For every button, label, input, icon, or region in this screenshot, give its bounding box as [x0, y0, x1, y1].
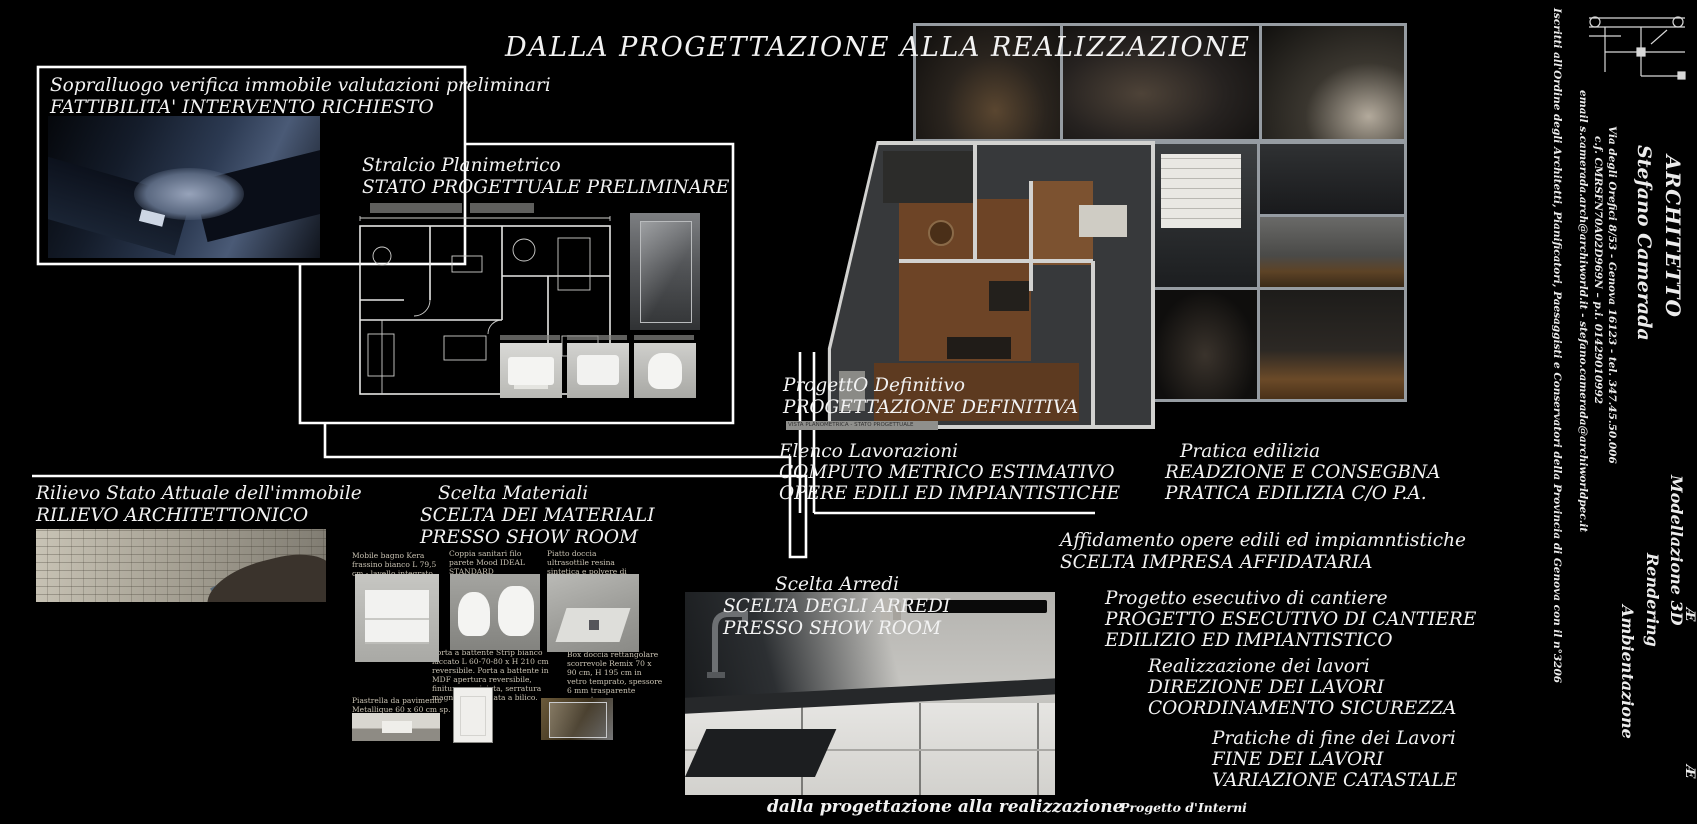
- materiali-title: Scelta Materiali: [438, 484, 588, 504]
- sidebar-service-3: Ambientazione: [1619, 605, 1635, 739]
- shower-cabin-photo: [630, 213, 700, 330]
- esecutivo-title: Progetto esecutivo di cantiere: [1105, 589, 1388, 609]
- sidebar-service-1: Modellazione 3D: [1668, 475, 1684, 626]
- hand-sketch-photo: [36, 529, 326, 602]
- shower-tray-photo: [547, 574, 639, 652]
- thumb-caption-bar: [500, 335, 560, 340]
- vanity-photo: [355, 574, 439, 662]
- shower-glass: [640, 221, 692, 323]
- render-photo: [1262, 26, 1404, 139]
- pratica-title: Pratica edilizia: [1180, 442, 1320, 462]
- thumb-caption-bar: [567, 335, 627, 340]
- sopralluogo-title: Sopralluogo verifica immobile valutazion…: [50, 76, 551, 96]
- sidebar-architect-name: Stefano Camerada: [1634, 145, 1653, 341]
- plan-note-bar: [470, 203, 534, 213]
- bidet-shape: [458, 592, 490, 636]
- arredi-title: Scelta Arredi: [775, 575, 899, 595]
- elenco-title: Elenco Lavorazioni: [779, 442, 958, 462]
- progetto-definitivo-subtitle: PROGETTAZIONE DEFINITIVA: [783, 398, 1078, 418]
- presentation-board: DALLA PROGETTAZIONE ALLA REALIZZAZIONE S…: [0, 0, 1697, 824]
- fine-lavori-line3: VARIAZIONE CATASTALE: [1212, 771, 1457, 791]
- footer-project-label: Progetto d'Interni: [1120, 801, 1247, 815]
- bidet-thumb: [634, 343, 696, 398]
- rilievo-title: Rilievo Stato Attuale dell'immobile: [36, 484, 362, 504]
- render-collage-right: [1150, 141, 1407, 402]
- stralcio-subtitle: STATO PROGETTUALE PRELIMINARE: [362, 178, 729, 198]
- fine-lavori-line2: FINE DEI LAVORI: [1212, 750, 1383, 770]
- washbasin-shape: [508, 357, 554, 385]
- kitchen-sink: [685, 729, 836, 777]
- island-shape: [382, 721, 412, 733]
- realizzazione-title: Realizzazione dei lavori: [1148, 657, 1370, 677]
- handshake-photo: [48, 116, 320, 258]
- edge-glyph: Æ: [1683, 608, 1696, 621]
- door-photo: [453, 687, 493, 743]
- pratica-line2: READZIONE E CONSEGBNA: [1165, 463, 1441, 483]
- shower-box-glass: [549, 702, 607, 738]
- door-panel-line: [460, 696, 486, 736]
- fine-lavori-title: Pratiche di fine dei Lavori: [1212, 729, 1456, 749]
- pratica-line3: PRATICA EDILIZIA C/O P.A.: [1165, 484, 1427, 504]
- materiali-line2: SCELTA DEI MATERIALI: [420, 506, 655, 526]
- rilievo-subtitle: RILIEVO ARCHITETTONICO: [36, 506, 308, 526]
- product-caption: Box doccia rettangolare scorrevole Remix…: [567, 650, 663, 704]
- render-photo: [1260, 144, 1404, 214]
- bidet-shape: [648, 353, 682, 389]
- product-caption: Coppia sanitari filo parete Mood IDEAL S…: [449, 549, 547, 576]
- product-caption: Porta a battente Strip bianco laccato L …: [432, 648, 560, 702]
- sidebar-profession: ARCHITETTO: [1663, 155, 1683, 318]
- esecutivo-line2: PROGETTO ESECUTIVO DI CANTIERE: [1105, 610, 1476, 630]
- arredi-line2: SCELTA DEGLI ARREDI: [723, 597, 950, 617]
- washbasin-thumb: [500, 343, 562, 398]
- plan-sheet-thumb: [1161, 154, 1241, 228]
- render-photo-bathroom: [1153, 144, 1257, 287]
- arredi-line3: PRESSO SHOW ROOM: [723, 619, 941, 639]
- edge-glyph: Æ: [1683, 765, 1696, 778]
- sidebar-email: email s.camerada.arch@archiworld.it - st…: [1578, 90, 1589, 532]
- elenco-line2: COMPUTO METRICO ESTIMATIVO: [779, 463, 1115, 483]
- vanity-drawer-line: [365, 618, 429, 620]
- washbasin-thumb: [567, 343, 629, 398]
- thumb-caption-bar: [634, 335, 694, 340]
- vanity-shape: [365, 590, 429, 644]
- toilet-shape: [498, 586, 534, 636]
- realizzazione-line3: COORDINAMENTO SICUREZZA: [1148, 699, 1456, 719]
- sidebar-fiscal-code: c.f. CMRSFN70A02D969N – p.i. 01429010992: [1593, 136, 1604, 404]
- plan-caption-bar: VISTA PLANOMETRICA - STATO PROGETTUALE: [786, 421, 938, 430]
- toilet-bidet-photo: [450, 574, 540, 650]
- render-photo: [1153, 290, 1257, 399]
- washbasin-shape: [577, 355, 619, 385]
- drafting-machine-logo-icon: [1585, 6, 1689, 84]
- render-photo-woodfloor: [1260, 290, 1404, 399]
- sopralluogo-subtitle: FATTIBILITA' INTERVENTO RICHIESTO: [50, 98, 434, 118]
- tile-floor-photo: [352, 713, 440, 741]
- materiali-line3: PRESSO SHOW ROOM: [420, 528, 638, 548]
- sidebar-service-2: Rendering: [1644, 553, 1660, 647]
- affidamento-title: Affidamento opere edili ed impiamntistic…: [1060, 531, 1466, 551]
- footer-caption: dalla progettazione alla realizzazione: [767, 798, 1123, 817]
- realizzazione-line2: DIREZIONE DEI LAVORI: [1148, 678, 1384, 698]
- plan-note-bar: [370, 203, 462, 213]
- sidebar-address: Via degli Orefici 8/53 - Genova 16123 - …: [1607, 126, 1618, 464]
- stralcio-title: Stralcio Planimetrico: [362, 156, 561, 176]
- affidamento-line2: SCELTA IMPRESA AFFIDATARIA: [1060, 553, 1373, 573]
- shower-box-photo: [541, 698, 613, 740]
- elenco-line3: OPERE EDILI ED IMPIANTISTICHE: [779, 484, 1120, 504]
- render-photo-dining: [1260, 217, 1404, 287]
- esecutivo-line3: EDILIZIO ED IMPIANTISTICO: [1105, 631, 1393, 651]
- drain-shape: [589, 620, 599, 630]
- sidebar-order-registration: Iscritti all'Ordine degli Architetti, Pi…: [1552, 8, 1563, 683]
- progetto-definitivo-title: ProgettO Definitivo: [783, 376, 965, 396]
- page-title: DALLA PROGETTAZIONE ALLA REALIZZAZIONE: [505, 33, 1251, 63]
